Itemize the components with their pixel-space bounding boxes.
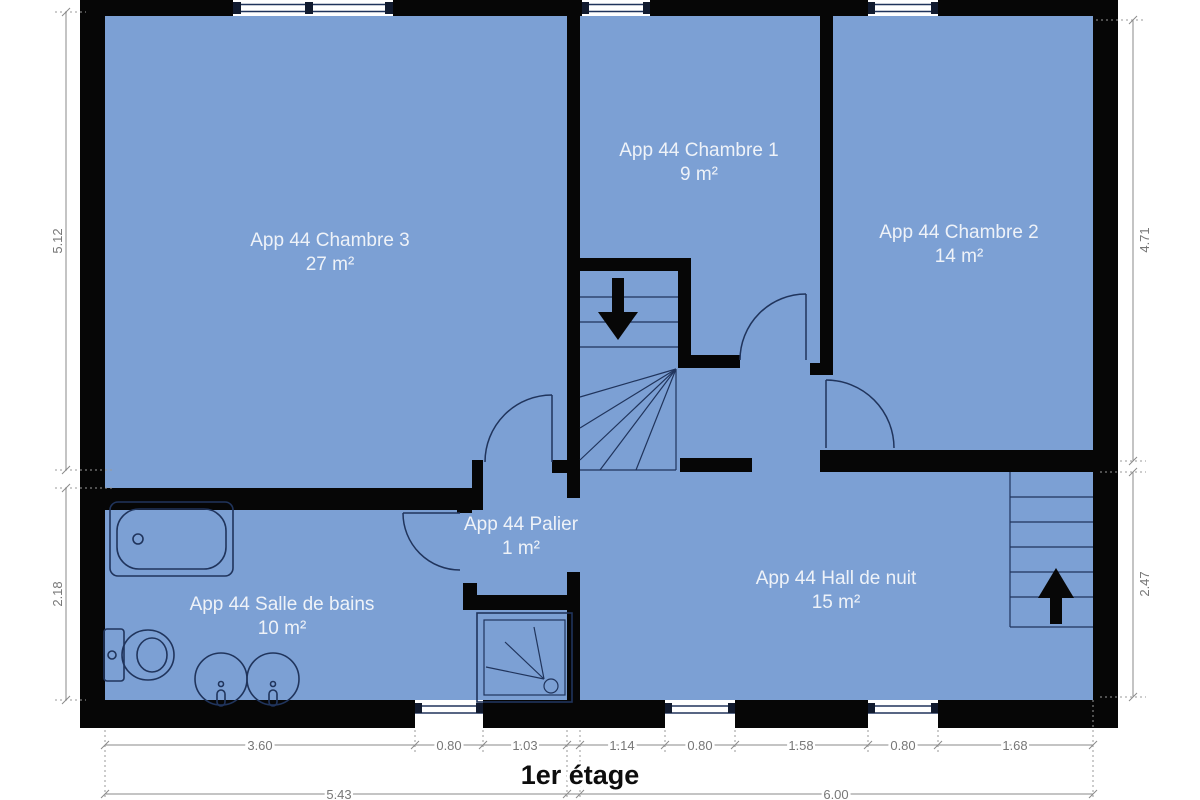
- room-area-chambre2: 14 m²: [935, 246, 984, 267]
- wall-jog-stub: [472, 460, 483, 510]
- dimension-label: 1.68: [1002, 738, 1027, 753]
- room-area-chambre1: 9 m²: [680, 164, 718, 185]
- dimension-label: 0.80: [890, 738, 915, 753]
- dimension-label: 5.12: [50, 228, 65, 253]
- wall-bathdoor-jamb: [457, 488, 472, 513]
- wall-stairwell-right: [678, 258, 691, 368]
- dimension-label: 0.80: [436, 738, 461, 753]
- dimension-label: 1.14: [609, 738, 634, 753]
- wall-hall-chambre2-divider: [820, 450, 1093, 472]
- room-area-salle-de-bains: 10 m²: [258, 618, 307, 639]
- wall-stairwell-top: [580, 258, 691, 271]
- dim-right-bottom: 2.47: [1129, 468, 1152, 701]
- window: [233, 0, 393, 16]
- wall-chambre3-divider: [567, 16, 580, 498]
- wall-bathroom-right: [567, 572, 580, 700]
- room-area-palier: 1 m²: [502, 538, 540, 559]
- building-shell: [80, 0, 1118, 728]
- room-area-hall: 15 m²: [812, 592, 861, 613]
- room-label-chambre1: App 44 Chambre 1: [619, 140, 779, 161]
- dimension-label: 2.18: [50, 581, 65, 606]
- room-area-chambre3: 27 m²: [306, 254, 355, 275]
- wall-nook-bottom: [680, 458, 752, 472]
- dimension-label: 0.80: [687, 738, 712, 753]
- wall-chambre1-chambre2-divider: [820, 16, 833, 363]
- dimension-label: 4.71: [1137, 227, 1152, 252]
- wall-stub: [810, 363, 833, 375]
- room-label-salle-de-bains: App 44 Salle de bains: [190, 594, 375, 615]
- page-title: 1er étage: [521, 760, 640, 790]
- room-label-chambre3: App 44 Chambre 3: [250, 230, 410, 251]
- wall-palier-top: [552, 460, 580, 473]
- room-label-hall: App 44 Hall de nuit: [756, 568, 917, 589]
- window: [868, 0, 938, 16]
- dimension-label: 5.43: [326, 787, 351, 800]
- dimension-label: 1.58: [788, 738, 813, 753]
- wall-bathroom-top: [105, 488, 472, 510]
- dim-left-bottom: 2.18: [50, 484, 70, 704]
- room-label-chambre2: App 44 Chambre 2: [879, 222, 1039, 243]
- dimension-label: 3.60: [247, 738, 272, 753]
- dim-left-top: 5.12: [50, 8, 70, 474]
- wall-palier-bottom: [463, 595, 575, 610]
- dimension-label: 6.00: [823, 787, 848, 800]
- dimension-label: 2.47: [1137, 571, 1152, 596]
- dim-right-top: 4.71: [1129, 16, 1152, 465]
- dimension-label: 1.03: [512, 738, 537, 753]
- room-label-palier: App 44 Palier: [464, 514, 579, 535]
- dim-bottom-row1: 3.60 0.80 1.03 1.14 0.80 1.58 0.80 1.68: [101, 738, 1097, 753]
- floor-plan: App 44 Chambre 3 27 m² App 44 Chambre 1 …: [0, 0, 1200, 800]
- window: [868, 700, 938, 728]
- window: [582, 0, 650, 16]
- wall-stairwell-bottom: [678, 355, 740, 368]
- window: [415, 700, 483, 728]
- window: [665, 700, 735, 728]
